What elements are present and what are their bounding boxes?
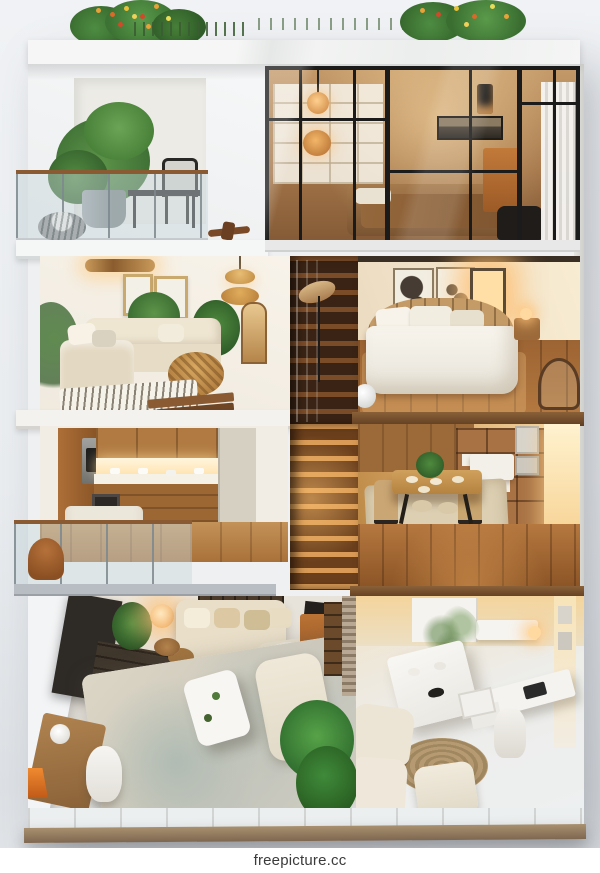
sofa-pillow bbox=[184, 608, 210, 628]
base-slab-edge bbox=[24, 824, 586, 843]
bed-duvet bbox=[366, 326, 518, 394]
fern-plant bbox=[84, 102, 154, 160]
glass-bedroom bbox=[265, 66, 580, 244]
living-room bbox=[40, 256, 290, 426]
plant-centerpiece bbox=[416, 452, 444, 478]
white-desk-lamp bbox=[50, 724, 70, 744]
upper-cabinets bbox=[96, 428, 218, 458]
pantry-panel bbox=[218, 428, 256, 522]
dining-room bbox=[358, 424, 580, 590]
brick-divider-column bbox=[342, 596, 356, 696]
sofa-pillow bbox=[158, 324, 184, 342]
bedroom bbox=[358, 256, 580, 426]
flower-dots-right bbox=[420, 8, 425, 13]
table-deco-plants bbox=[212, 692, 220, 700]
small-wall-frame bbox=[558, 606, 572, 624]
flower-dots-left bbox=[96, 8, 101, 13]
roof-grass-tufts bbox=[134, 22, 246, 36]
divider-wood-shelf bbox=[324, 602, 342, 676]
counter-lamp bbox=[528, 626, 541, 639]
wicker-chair bbox=[538, 358, 580, 410]
arched-mirror bbox=[241, 302, 267, 364]
seat-cushion bbox=[412, 500, 432, 512]
dollhouse-render: freepicture.cc bbox=[0, 0, 600, 873]
roof-slab bbox=[28, 40, 580, 66]
white-shell-chair bbox=[86, 746, 122, 802]
indoor-bush bbox=[112, 602, 152, 650]
bedroom-ceiling-edge bbox=[358, 256, 580, 262]
floor-slab-second-left bbox=[14, 584, 276, 596]
glass-reflection bbox=[265, 66, 580, 244]
white-desk-chair bbox=[494, 708, 526, 758]
glowing-table-lamp bbox=[150, 604, 174, 628]
nightstand-lamp bbox=[520, 308, 532, 320]
watermark-bar: freepicture.cc bbox=[0, 848, 600, 873]
nightstand bbox=[514, 318, 540, 340]
roof-shrub-right bbox=[446, 0, 526, 42]
pendant-cord bbox=[239, 256, 241, 270]
floor-lamp-pole bbox=[318, 296, 320, 382]
ground-floor bbox=[28, 596, 584, 830]
floor-slab-top-right bbox=[265, 240, 580, 252]
brown-lounge-chair bbox=[28, 538, 64, 580]
office-lounge bbox=[356, 596, 584, 830]
stair-railing bbox=[296, 260, 298, 422]
wicker-pendant-lamp bbox=[225, 269, 255, 284]
round-side-tables bbox=[154, 638, 180, 656]
ceiling-light bbox=[85, 259, 155, 272]
small-gray-frame bbox=[515, 456, 539, 475]
dining-floor bbox=[358, 524, 580, 590]
table-plates bbox=[406, 476, 418, 483]
stairwell-lower bbox=[290, 424, 358, 590]
decorative-bowl bbox=[38, 212, 86, 242]
sofa-pillow bbox=[92, 330, 116, 347]
table-deco-bowl bbox=[408, 668, 420, 676]
small-gray-frame bbox=[515, 426, 539, 454]
watermark-text: freepicture.cc bbox=[254, 852, 347, 869]
counter-dishes bbox=[110, 468, 120, 474]
